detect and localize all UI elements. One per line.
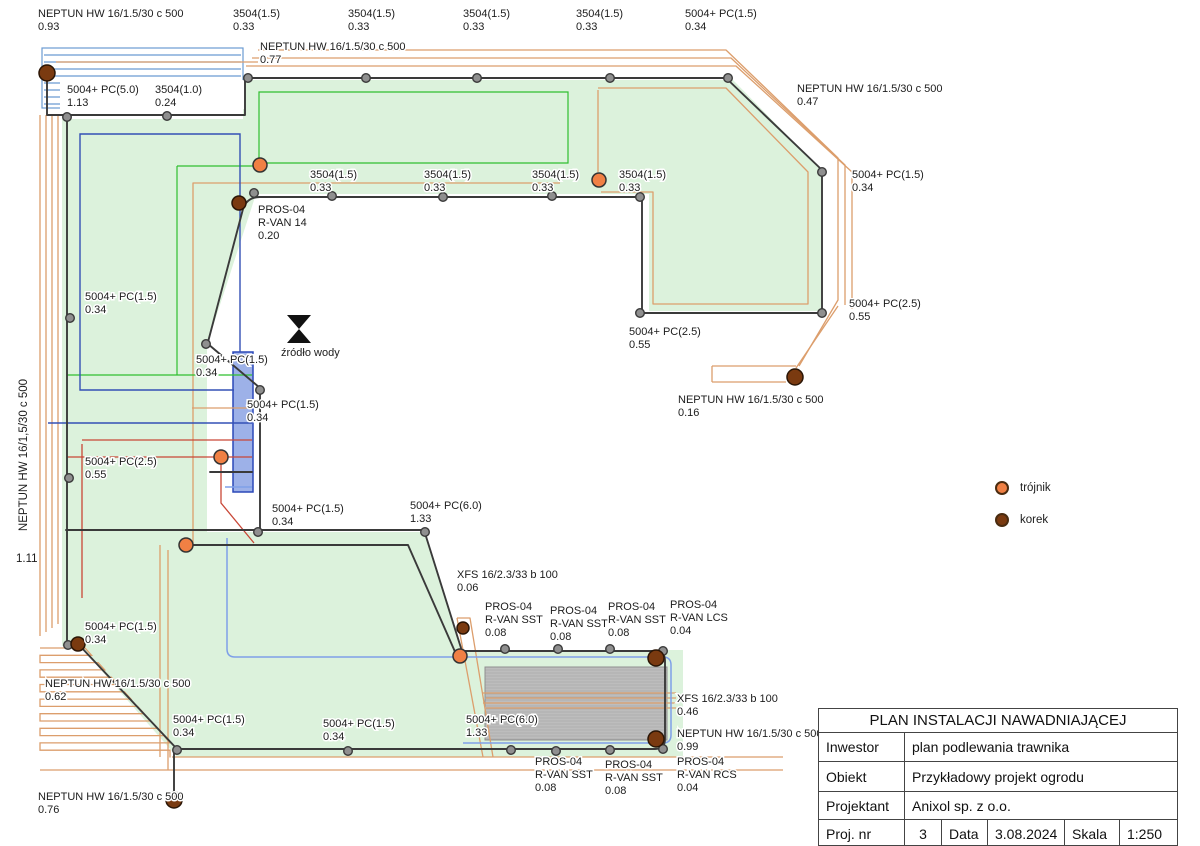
pipe-node xyxy=(244,74,253,83)
legend-label: korek xyxy=(1020,514,1048,526)
legend-label: trójnik xyxy=(1020,482,1051,494)
pipe-node xyxy=(421,528,430,537)
pipe-label: 3504(1.5)0.33 xyxy=(348,8,395,33)
trojnik-marker xyxy=(592,173,606,187)
titleblock-value-projektant: Anixol sp. z o.o. xyxy=(904,792,1177,819)
titleblock-label-inwestor: Inwestor xyxy=(819,733,904,761)
pipe-label: NEPTUN HW 16/1.5/30 c 5000.16 xyxy=(678,394,824,419)
title-block-title: PLAN INSTALACJI NAWADNIAJĄCEJ xyxy=(819,709,1177,732)
pipe-label: NEPTUN HW 16/1.5/30 c 5000.76 xyxy=(38,791,184,816)
pipe-node xyxy=(65,474,74,483)
irrigation-plan-page: NEPTUN HW 16/1,5/30 c 500 1.11 NEPTUN HW… xyxy=(0,0,1200,846)
water-source-label: źródło wody xyxy=(281,347,340,359)
pipe-label: NEPTUN HW 16/1.5/30 c 5000.77 xyxy=(260,41,406,66)
pipe-label: 5004+ PC(1.5)0.34 xyxy=(685,8,757,33)
korek-marker xyxy=(787,369,803,385)
titleblock-value-obiekt: Przykładowy projekt ogrodu xyxy=(904,762,1177,791)
pipe-node xyxy=(606,74,615,83)
pipe-label: NEPTUN HW 16/1.5/30 c 5000.93 xyxy=(38,8,184,33)
pipe-node xyxy=(250,189,259,198)
titleblock-data-label: Data xyxy=(941,820,987,846)
left-pipe-vertical-label: NEPTUN HW 16/1,5/30 c 500 xyxy=(18,379,30,531)
trojnik-marker xyxy=(453,649,467,663)
trojnik-marker xyxy=(214,450,228,464)
legend-item-trojnik: trójnik xyxy=(995,481,1051,495)
pipe-node xyxy=(501,645,510,654)
korek-marker xyxy=(457,622,469,634)
pipe-label: NEPTUN HW 16/1.5/30 c 5000.47 xyxy=(797,83,943,108)
pipe-node xyxy=(606,645,615,654)
pipe-label: 5004+ PC(2.5)0.55 xyxy=(629,326,701,351)
pipe-node xyxy=(473,74,482,83)
pipe-label: PROS-04R-VAN 140.20 xyxy=(258,204,307,242)
pipe-node xyxy=(254,528,263,537)
pipe-label: PROS-04R-VAN SST0.08 xyxy=(605,759,663,797)
pipe-node xyxy=(202,340,211,349)
pipe-label: PROS-04R-VAN SST0.08 xyxy=(550,605,608,643)
pipe-node xyxy=(818,168,827,177)
pipe-label: PROS-04R-VAN RCS0.04 xyxy=(677,756,737,794)
pipe-label: XFS 16/2.3/33 b 1000.46 xyxy=(677,693,778,718)
pipe-node xyxy=(552,747,561,756)
titleblock-skala-label: Skala xyxy=(1064,820,1119,846)
titleblock-proj-nr-label: Proj. nr xyxy=(819,820,904,846)
pipe-label: PROS-04R-VAN SST0.08 xyxy=(485,601,543,639)
trojnik-marker xyxy=(253,158,267,172)
titleblock-proj-nr-value: 3 xyxy=(904,820,941,846)
titleblock-skala-value: 1:250 xyxy=(1119,820,1177,846)
pipe-label: 5004+ PC(1.5)0.34 xyxy=(852,169,924,194)
korek-marker xyxy=(71,637,85,651)
pipe-label: 3504(1.5)0.33 xyxy=(576,8,623,33)
pipe-label: 5004+ PC(1.5)0.34 xyxy=(272,503,344,528)
korek-marker xyxy=(39,65,55,81)
pipe-node xyxy=(163,112,172,121)
pipe-node xyxy=(173,746,182,755)
pipe-node xyxy=(606,746,615,755)
pipe-node xyxy=(344,747,353,756)
water-source-icon xyxy=(287,315,311,343)
pipe-label: XFS 16/2.3/33 b 1000.06 xyxy=(457,569,558,594)
lawn-area-upper xyxy=(62,80,821,532)
pipe-node xyxy=(66,314,75,323)
titleblock-label-projektant: Projektant xyxy=(819,792,904,819)
pipe-label: PROS-04R-VAN SST0.08 xyxy=(535,756,593,794)
pipe-node xyxy=(554,645,563,654)
korek-marker xyxy=(648,731,664,747)
pipe-label: 3504(1.5)0.33 xyxy=(463,8,510,33)
legend-item-korek: korek xyxy=(995,513,1048,527)
pipe-node xyxy=(362,74,371,83)
trojnik-icon xyxy=(995,481,1009,495)
pipe-label: PROS-04R-VAN LCS0.04 xyxy=(670,599,728,637)
pipe-node xyxy=(724,74,733,83)
title-block: PLAN INSTALACJI NAWADNIAJĄCEJ Inwestor p… xyxy=(818,708,1178,846)
pipe-node xyxy=(636,309,645,318)
pipe-node xyxy=(256,386,265,395)
left-pipe-value: 1.11 xyxy=(16,553,38,565)
titleblock-data-value: 3.08.2024 xyxy=(987,820,1064,846)
korek-icon xyxy=(995,513,1009,527)
korek-marker xyxy=(648,650,664,666)
pipe-label: PROS-04R-VAN SST0.08 xyxy=(608,601,666,639)
pipe-label: 5004+ PC(6.0)1.33 xyxy=(410,500,482,525)
pipe-node xyxy=(507,746,516,755)
titleblock-label-obiekt: Obiekt xyxy=(819,762,904,791)
pipe-node xyxy=(63,113,72,122)
pipe-label: 5004+ PC(2.5)0.55 xyxy=(849,298,921,323)
pipe-label: 3504(1.5)0.33 xyxy=(233,8,280,33)
trojnik-marker xyxy=(179,538,193,552)
pipe-label: NEPTUN HW 16/1.5/30 c 5000.99 xyxy=(677,728,823,753)
titleblock-value-inwestor: plan podlewania trawnika xyxy=(904,733,1177,761)
korek-marker xyxy=(232,196,246,210)
pipe-label: 5004+ PC(1.5)0.34 xyxy=(247,399,319,424)
pipe-node xyxy=(818,309,827,318)
